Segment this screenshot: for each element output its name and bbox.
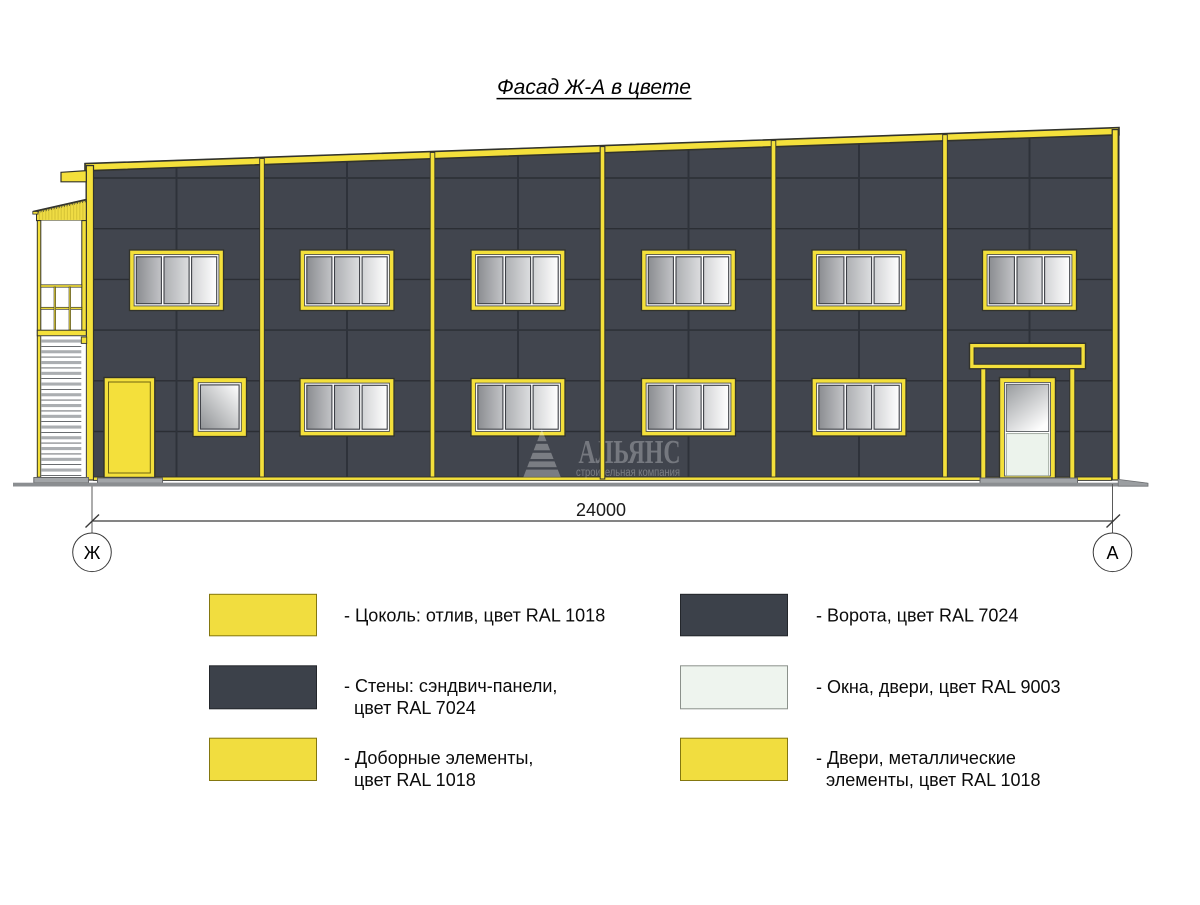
svg-text:А: А [1106, 543, 1118, 563]
svg-text:элементы, цвет RAL 1018: элементы, цвет RAL 1018 [816, 770, 1041, 790]
svg-text:АЛЬЯНС: АЛЬЯНС [579, 434, 681, 471]
svg-text:24000: 24000 [576, 500, 626, 520]
svg-text:- Стены: сэндвич-панели,: - Стены: сэндвич-панели, [344, 676, 557, 696]
svg-text:Фасад Ж-А в цвете: Фасад Ж-А в цвете [497, 76, 691, 99]
svg-text:- Доборные элементы,: - Доборные элементы, [344, 748, 533, 768]
svg-text:цвет RAL 1018: цвет RAL 1018 [344, 770, 476, 790]
svg-text:- Ворота, цвет RAL 7024: - Ворота, цвет RAL 7024 [816, 606, 1018, 626]
svg-text:- Цоколь: отлив, цвет RAL 1018: - Цоколь: отлив, цвет RAL 1018 [344, 606, 605, 626]
svg-text:цвет RAL 7024: цвет RAL 7024 [344, 698, 476, 718]
svg-text:- Окна, двери, цвет RAL 9003: - Окна, двери, цвет RAL 9003 [816, 677, 1061, 697]
svg-text:Ж: Ж [84, 543, 101, 563]
svg-text:строительная компания: строительная компания [576, 467, 680, 479]
svg-text:- Двери, металлические: - Двери, металлические [816, 748, 1016, 768]
